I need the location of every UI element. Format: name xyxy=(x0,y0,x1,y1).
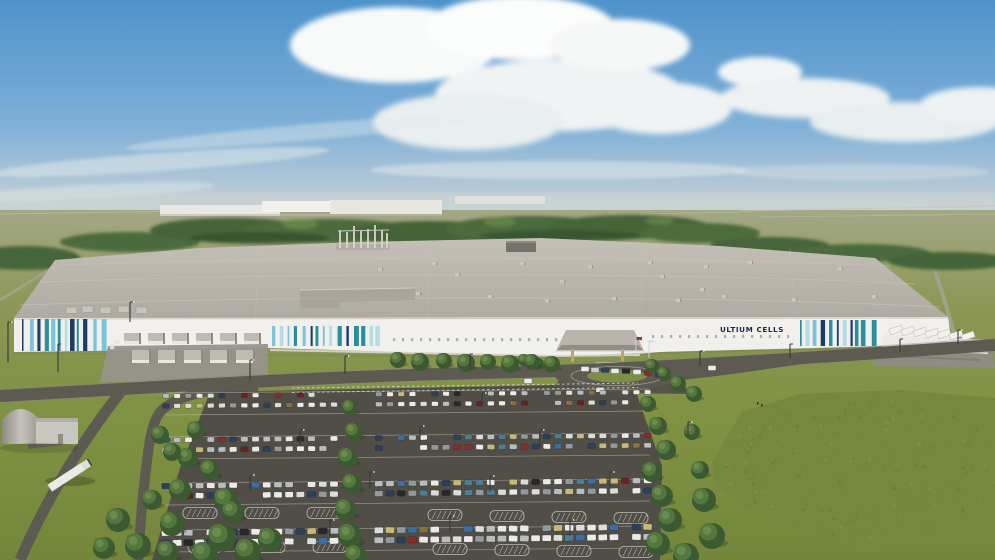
canopy-column xyxy=(571,349,574,362)
vehicle xyxy=(611,369,619,374)
grass-speckle xyxy=(958,487,960,489)
parked-car xyxy=(163,404,170,409)
parked-car xyxy=(397,480,405,486)
parked-car xyxy=(386,481,394,487)
parked-car xyxy=(632,534,641,541)
aerial-rendering: ULTIUM CELLS xyxy=(0,0,995,560)
parked-car xyxy=(476,434,483,439)
grass-speckle xyxy=(744,444,746,446)
facade-stripe xyxy=(829,320,833,346)
parked-car xyxy=(453,536,462,542)
parked-car xyxy=(565,444,573,449)
parked-car xyxy=(285,436,293,441)
grass-speckle xyxy=(881,538,883,540)
parked-car xyxy=(520,535,529,542)
facade-window xyxy=(661,335,663,338)
facade-stripe xyxy=(354,326,359,346)
grass-speckle xyxy=(772,477,774,479)
parked-car xyxy=(499,401,506,406)
facade-window xyxy=(760,335,762,338)
grass-speckle xyxy=(891,455,893,457)
hatched-island xyxy=(428,510,462,521)
canopy-column xyxy=(621,349,624,362)
parked-car xyxy=(263,482,271,488)
grass-speckle xyxy=(949,522,951,524)
facade-stripe xyxy=(872,320,877,346)
facade-window xyxy=(697,335,699,338)
grass-speckle xyxy=(901,465,902,466)
parked-car xyxy=(632,524,641,530)
parked-car xyxy=(486,526,495,532)
parked-car xyxy=(397,537,406,543)
facade-stripe xyxy=(280,326,284,346)
grass-speckle xyxy=(737,435,740,438)
grass-speckle xyxy=(893,487,896,490)
grass-speckle xyxy=(930,528,933,531)
parked-car xyxy=(486,536,495,543)
grass-speckle xyxy=(978,468,979,469)
parked-car xyxy=(554,489,563,495)
grass-speckle xyxy=(878,397,880,399)
grass-speckle xyxy=(836,433,838,435)
parked-car xyxy=(520,525,529,532)
grass-speckle xyxy=(941,494,943,496)
parked-car xyxy=(498,444,506,449)
facade-stripe xyxy=(51,319,55,351)
parked-car xyxy=(464,526,473,532)
parked-car xyxy=(307,482,315,488)
grass-speckle xyxy=(813,524,815,526)
parked-car xyxy=(520,489,528,495)
grass-speckle xyxy=(856,469,859,472)
hatched-island xyxy=(495,545,529,556)
parked-car xyxy=(329,528,338,534)
parked-car xyxy=(564,534,573,541)
parked-car xyxy=(632,488,641,494)
parked-car xyxy=(643,488,652,494)
parked-car xyxy=(498,489,506,495)
parked-car xyxy=(553,525,562,531)
vehicle xyxy=(591,368,599,373)
grass-speckle xyxy=(808,512,810,514)
grass-speckle xyxy=(986,444,988,446)
grass-speckle xyxy=(796,425,799,428)
grass-speckle xyxy=(963,493,965,495)
parked-car xyxy=(609,524,618,530)
parked-car xyxy=(599,400,606,405)
parked-car xyxy=(598,534,607,541)
grass-speckle xyxy=(934,449,935,450)
grass-speckle xyxy=(870,494,872,496)
parked-car xyxy=(577,400,584,405)
parked-car xyxy=(622,390,629,395)
grass-speckle xyxy=(870,430,872,432)
parked-car xyxy=(409,402,416,407)
parked-car xyxy=(263,446,271,451)
grass-speckle xyxy=(808,404,810,406)
grass-speckle xyxy=(949,502,950,503)
grass-speckle xyxy=(888,432,890,434)
parked-car xyxy=(521,444,529,449)
parked-car xyxy=(465,434,473,439)
parked-car xyxy=(375,402,382,407)
hatched-island xyxy=(245,508,279,519)
facade-stripe xyxy=(93,319,96,351)
parked-car xyxy=(284,538,293,545)
parked-car xyxy=(420,435,428,440)
grass-speckle xyxy=(875,420,877,422)
parked-car xyxy=(229,437,236,442)
parked-car xyxy=(173,437,180,442)
rendering-canvas: ULTIUM CELLS xyxy=(0,0,995,560)
parked-car xyxy=(207,437,214,442)
parked-car xyxy=(576,524,585,531)
parked-car xyxy=(599,433,606,438)
grass-speckle xyxy=(754,490,757,493)
hatched-island xyxy=(433,544,467,555)
grass-speckle xyxy=(930,446,932,448)
grass-speckle xyxy=(874,455,876,457)
grass-speckle xyxy=(869,405,872,408)
parked-car xyxy=(610,488,619,494)
rooftop-unit xyxy=(82,306,93,313)
grass-speckle xyxy=(918,498,919,499)
parked-car xyxy=(308,393,315,398)
parked-car xyxy=(431,480,439,486)
parked-car xyxy=(241,437,248,442)
parked-car xyxy=(521,434,528,439)
grass-speckle xyxy=(897,410,900,413)
grass-speckle xyxy=(770,422,771,423)
grass-speckle xyxy=(863,535,865,537)
parked-car xyxy=(633,443,641,448)
grass-speckle xyxy=(757,494,759,496)
parked-car xyxy=(230,403,237,408)
parked-car xyxy=(430,536,439,542)
parked-car xyxy=(442,445,450,451)
parked-car xyxy=(566,434,573,439)
parked-car xyxy=(531,535,540,541)
parked-car xyxy=(207,393,214,398)
grass-speckle xyxy=(884,428,887,431)
parked-car xyxy=(252,437,259,442)
facade-window xyxy=(510,338,512,341)
grass-speckle xyxy=(775,446,777,448)
facade-window xyxy=(411,338,413,341)
grass-speckle xyxy=(769,427,772,430)
grass-speckle xyxy=(980,446,982,448)
parked-car xyxy=(274,492,282,498)
parked-car xyxy=(441,536,450,542)
grass-speckle xyxy=(920,502,921,503)
parked-car xyxy=(521,401,528,406)
parked-car xyxy=(521,391,528,396)
grass-speckle xyxy=(907,506,909,508)
facade-stripe xyxy=(837,320,839,346)
grass-speckle xyxy=(747,448,749,450)
grass-speckle xyxy=(893,504,896,507)
grass-speckle xyxy=(810,493,813,496)
grass-speckle xyxy=(832,501,833,502)
parked-car xyxy=(565,479,573,485)
rooftop-unit xyxy=(100,307,111,314)
grass-speckle xyxy=(802,508,805,511)
parked-car xyxy=(218,447,226,453)
grass-speckle xyxy=(961,466,964,469)
facade-window xyxy=(688,335,690,338)
vehicle xyxy=(708,366,716,371)
parked-car xyxy=(453,490,462,496)
parked-car xyxy=(566,400,573,405)
grass-speckle xyxy=(891,488,893,490)
facade-stripe xyxy=(294,326,297,346)
parked-car xyxy=(251,482,259,488)
facade-window xyxy=(724,335,726,338)
grass-speckle xyxy=(936,497,939,500)
grass-speckle xyxy=(807,471,809,473)
grass-speckle xyxy=(748,427,751,430)
parked-car xyxy=(487,434,494,439)
parked-car xyxy=(207,483,215,489)
grass-speckle xyxy=(866,517,869,520)
facade-window xyxy=(751,335,753,338)
grass-speckle xyxy=(797,515,798,516)
parked-car xyxy=(587,478,595,484)
grass-speckle xyxy=(893,409,894,410)
parked-car xyxy=(318,538,327,545)
grass-speckle xyxy=(899,490,902,493)
parked-car xyxy=(543,489,552,495)
grass-speckle xyxy=(907,488,910,491)
parked-car xyxy=(487,479,495,485)
grass-speckle xyxy=(837,417,840,420)
parked-car xyxy=(598,524,607,531)
facade-window xyxy=(474,338,476,341)
facade-stripe xyxy=(813,320,817,346)
parked-car xyxy=(420,445,428,450)
grass-speckle xyxy=(775,460,778,463)
facade-window xyxy=(778,335,780,338)
parked-car xyxy=(622,433,629,438)
parked-car xyxy=(207,447,215,452)
grass-speckle xyxy=(822,432,824,434)
parked-car xyxy=(419,490,428,496)
parked-car xyxy=(464,480,472,486)
grass-speckle xyxy=(829,509,832,512)
parked-car xyxy=(241,403,248,408)
parked-car xyxy=(319,402,326,407)
grass-speckle xyxy=(971,469,973,471)
facade-window xyxy=(733,335,735,338)
parked-car xyxy=(520,479,528,485)
parked-car xyxy=(633,433,640,438)
parked-car xyxy=(397,527,406,533)
parked-car xyxy=(419,536,428,543)
parked-car xyxy=(443,391,450,396)
facade-stripe xyxy=(30,319,34,351)
parked-car xyxy=(307,528,316,535)
parked-car xyxy=(285,492,293,498)
facade-stripe xyxy=(272,326,275,346)
parked-car xyxy=(587,524,596,530)
grass-speckle xyxy=(805,498,808,501)
parked-car xyxy=(432,392,439,397)
parked-car xyxy=(307,491,316,497)
parked-car xyxy=(296,528,305,534)
parked-car xyxy=(408,537,417,544)
parked-car xyxy=(274,446,282,452)
grass-speckle xyxy=(890,399,893,402)
facade-stripe xyxy=(22,319,24,351)
grass-speckle xyxy=(838,479,841,482)
grass-speckle xyxy=(923,524,925,526)
grass-speckle xyxy=(978,498,980,500)
grass-speckle xyxy=(804,471,805,472)
parked-car xyxy=(532,434,539,439)
grass-speckle xyxy=(934,505,936,507)
parked-car xyxy=(195,492,204,498)
parked-car xyxy=(544,391,551,396)
parked-car xyxy=(509,434,517,439)
grass-speckle xyxy=(824,459,826,461)
parked-car xyxy=(241,447,249,452)
grass-speckle xyxy=(779,430,782,433)
grass-speckle xyxy=(855,513,858,516)
facade-window xyxy=(555,338,557,341)
facade-stripe xyxy=(311,326,313,346)
grass-speckle xyxy=(921,528,923,530)
parked-car xyxy=(644,390,651,395)
grass-speckle xyxy=(760,479,762,481)
parked-car xyxy=(274,436,281,441)
parked-car xyxy=(599,443,606,448)
grass-speckle xyxy=(906,530,907,531)
grass-speckle xyxy=(833,518,836,521)
grass-speckle xyxy=(944,481,946,483)
facade-window xyxy=(679,335,681,338)
parked-car xyxy=(195,483,203,489)
parked-car xyxy=(454,435,461,440)
parked-car xyxy=(307,538,316,545)
facade-window xyxy=(546,338,548,341)
facade-stripe xyxy=(821,320,825,346)
facade-stripe xyxy=(370,326,374,346)
parked-car xyxy=(398,435,405,440)
facade-window xyxy=(769,335,771,338)
parked-car xyxy=(453,445,461,450)
grass-speckle xyxy=(866,434,867,435)
parked-car xyxy=(375,392,382,397)
parked-car xyxy=(611,400,618,405)
hatched-island xyxy=(183,508,217,519)
parked-car xyxy=(554,479,562,485)
parked-car xyxy=(543,434,550,439)
parked-car xyxy=(644,443,651,448)
grass-speckle xyxy=(895,468,898,471)
parked-car xyxy=(588,390,595,395)
grass-speckle xyxy=(749,507,751,509)
grass-speckle xyxy=(752,444,754,446)
parked-car xyxy=(319,481,327,487)
grass-speckle xyxy=(961,513,964,516)
facade-stripe xyxy=(303,326,306,346)
parked-car xyxy=(420,401,427,406)
grass-speckle xyxy=(871,422,872,423)
parked-car xyxy=(543,444,551,450)
grass-speckle xyxy=(844,411,847,414)
parked-car xyxy=(185,437,192,442)
parked-car xyxy=(252,393,259,398)
parked-car xyxy=(207,493,215,499)
parked-car xyxy=(499,391,506,396)
parked-car xyxy=(632,478,640,484)
grass-speckle xyxy=(825,411,827,413)
grass-speckle xyxy=(949,479,952,482)
parked-car xyxy=(385,537,394,544)
grass-speckle xyxy=(970,510,971,511)
parked-car xyxy=(375,491,383,497)
grass-speckle xyxy=(858,437,860,439)
parked-car xyxy=(329,537,338,544)
grass-speckle xyxy=(930,522,932,524)
parked-car xyxy=(375,435,382,440)
parked-car xyxy=(330,481,338,487)
grass-speckle xyxy=(787,410,788,411)
parked-car xyxy=(442,480,450,486)
rooftop-unit xyxy=(136,307,147,314)
grass-speckle xyxy=(869,447,871,449)
parked-car xyxy=(252,403,259,408)
parked-car xyxy=(487,401,494,406)
parked-car xyxy=(308,402,315,407)
hatched-island xyxy=(490,511,524,522)
grass-speckle xyxy=(867,458,869,460)
grass-speckle xyxy=(752,482,755,485)
parked-car xyxy=(219,393,226,398)
parked-car xyxy=(509,489,517,495)
grass-speckle xyxy=(923,465,926,468)
rooftop-unit xyxy=(66,307,77,314)
grass-speckle xyxy=(753,474,755,476)
parked-car xyxy=(419,480,427,486)
parked-car xyxy=(588,433,595,438)
parked-car xyxy=(375,481,383,487)
parked-car xyxy=(599,478,607,484)
parked-car xyxy=(633,390,640,395)
grass-speckle xyxy=(922,447,925,450)
parked-car xyxy=(408,527,417,533)
rooftop-unit xyxy=(118,306,129,313)
facade-window xyxy=(501,338,503,341)
grass-speckle xyxy=(869,536,872,539)
facade-stripe xyxy=(861,320,866,346)
grass-speckle xyxy=(800,501,802,503)
parked-car xyxy=(532,479,540,485)
facade-window xyxy=(519,338,521,341)
grass-speckle xyxy=(914,465,917,468)
parked-car xyxy=(497,526,506,532)
parked-car xyxy=(622,400,629,405)
grass-speckle xyxy=(839,485,842,488)
grass-speckle xyxy=(882,498,884,500)
parked-car xyxy=(408,480,416,486)
grass-speckle xyxy=(740,443,742,445)
parked-car xyxy=(318,491,327,497)
grass-speckle xyxy=(914,507,916,509)
grass-speckle xyxy=(910,483,913,486)
parked-car xyxy=(275,393,282,398)
parked-car xyxy=(184,539,193,546)
